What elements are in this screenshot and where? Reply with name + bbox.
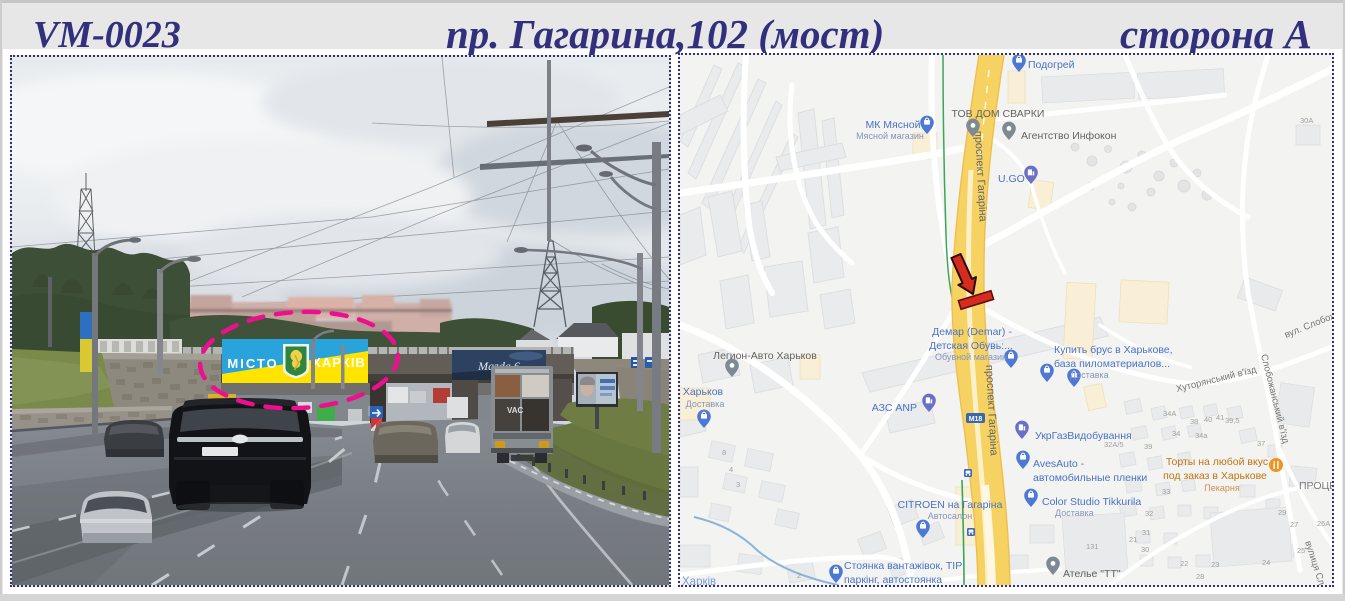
- svg-text:ТОВ ДОМ СВАРКИ: ТОВ ДОМ СВАРКИ: [952, 108, 1045, 120]
- svg-text:25: 25: [1297, 546, 1305, 555]
- svg-text:Легион-Авто Харьков: Легион-Авто Харьков: [713, 350, 817, 362]
- svg-text:29: 29: [1278, 508, 1286, 517]
- svg-text:Пекарня: Пекарня: [1204, 483, 1240, 493]
- svg-text:28: 28: [1196, 572, 1204, 581]
- svg-text:32: 32: [1145, 509, 1153, 518]
- svg-text:30: 30: [1141, 545, 1149, 554]
- svg-text:Демар (Demar) -: Демар (Demar) -: [932, 326, 1012, 338]
- svg-text:30А: 30А: [1300, 116, 1313, 125]
- svg-text:39,5: 39,5: [1225, 416, 1240, 425]
- svg-text:Детская Обувь:...: Детская Обувь:...: [929, 340, 1013, 352]
- svg-text:34: 34: [1172, 429, 1180, 438]
- svg-text:МІСТО: МІСТО: [227, 356, 278, 371]
- svg-text:31: 31: [1142, 528, 1150, 537]
- svg-text:Торты на любой вкус: Торты на любой вкус: [1166, 456, 1268, 468]
- svg-text:автомобильные пленки: автомобильные пленки: [1033, 472, 1147, 484]
- svg-text:24: 24: [1262, 558, 1270, 567]
- svg-text:база пиломатериалов...: база пиломатериалов...: [1054, 358, 1170, 370]
- svg-text:МК Мясной: МК Мясной: [866, 119, 921, 131]
- svg-text:22: 22: [1180, 559, 1188, 568]
- svg-text:Купить брус в Харькове,: Купить брус в Харькове,: [1054, 344, 1173, 356]
- svg-text:Станція технічного...: Станція технічного...: [884, 583, 970, 585]
- svg-text:под заказ в Харькове: под заказ в Харькове: [1163, 470, 1267, 482]
- svg-text:37: 37: [1257, 439, 1265, 448]
- svg-text:Харьков: Харьков: [683, 386, 724, 398]
- svg-text:3: 3: [736, 480, 740, 489]
- svg-text:41: 41: [1216, 413, 1224, 422]
- svg-text:4: 4: [729, 465, 733, 474]
- svg-text:40: 40: [1204, 415, 1212, 424]
- svg-text:23: 23: [1211, 560, 1219, 569]
- svg-text:ПРОЦЕ: ПРОЦЕ: [1299, 480, 1332, 492]
- svg-text:8: 8: [722, 448, 726, 457]
- svg-text:Агентство Инфокон: Агентство Инфокон: [1021, 130, 1117, 142]
- svg-text:2: 2: [797, 571, 801, 580]
- svg-text:AvesAuto -: AvesAuto -: [1033, 458, 1085, 470]
- svg-text:38: 38: [1190, 417, 1198, 426]
- svg-text:21: 21: [1129, 535, 1137, 544]
- svg-text:Доставка: Доставка: [1070, 370, 1109, 380]
- svg-text:CITROEN на Гагаріна: CITROEN на Гагаріна: [898, 499, 1003, 511]
- svg-text:Доставка: Доставка: [1055, 508, 1094, 518]
- svg-text:АЗС ANP: АЗС ANP: [872, 402, 917, 414]
- svg-text:32А/5: 32А/5: [1104, 440, 1124, 449]
- svg-text:Доставка: Доставка: [686, 399, 725, 409]
- svg-text:Мясной магазин: Мясной магазин: [856, 131, 924, 141]
- svg-text:Обувной магазин: Обувной магазин: [935, 352, 1007, 362]
- svg-text:131: 131: [1086, 542, 1099, 551]
- svg-text:39: 39: [1144, 442, 1152, 451]
- svg-text:Ателье "ТТ": Ателье "ТТ": [1063, 568, 1121, 580]
- svg-text:U.GO: U.GO: [998, 173, 1025, 185]
- svg-text:Харків: Харків: [682, 576, 716, 585]
- svg-text:VAC: VAC: [507, 406, 524, 415]
- svg-text:27: 27: [1290, 520, 1298, 529]
- svg-text:33: 33: [1162, 487, 1170, 496]
- svg-text:34А: 34А: [1163, 409, 1176, 418]
- svg-text:Подогрей: Подогрей: [1028, 59, 1075, 71]
- svg-text:Автосалон: Автосалон: [928, 511, 972, 521]
- svg-text:Стоянка вантажівок, TIP: Стоянка вантажівок, TIP: [844, 560, 962, 572]
- svg-text:Color Studio Tikkurila: Color Studio Tikkurila: [1042, 496, 1141, 508]
- svg-text:34а: 34а: [1195, 431, 1208, 440]
- svg-text:ХАРКІВ: ХАРКІВ: [312, 355, 366, 370]
- svg-text:M18: M18: [969, 416, 983, 423]
- svg-text:26А: 26А: [1317, 519, 1330, 528]
